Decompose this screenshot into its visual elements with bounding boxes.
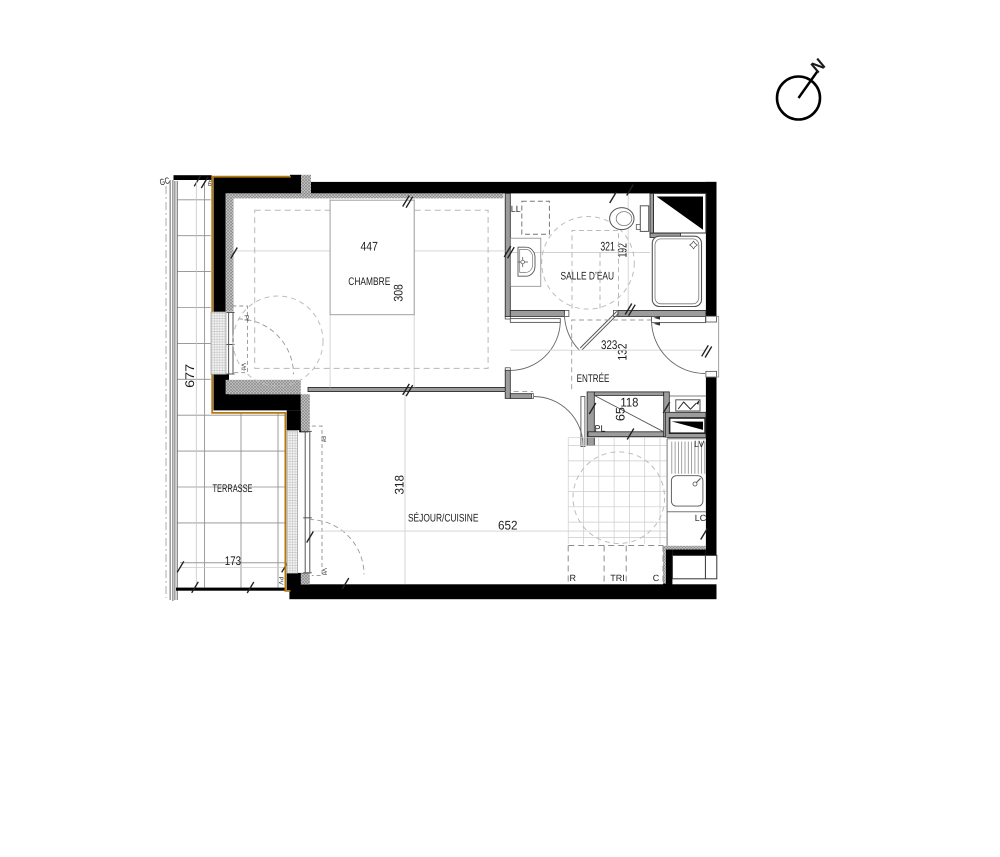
svg-text:PV: PV (277, 577, 284, 586)
svg-text:318: 318 (392, 475, 406, 495)
svg-text:Pf: Pf (320, 436, 327, 442)
svg-text:447: 447 (361, 239, 378, 253)
svg-text:LV: LV (694, 439, 704, 449)
svg-text:65: 65 (613, 407, 627, 421)
svg-text:C: C (653, 573, 660, 583)
svg-text:308: 308 (391, 284, 405, 301)
svg-text:LC: LC (695, 513, 707, 523)
svg-text:173: 173 (225, 554, 241, 568)
svg-text:132: 132 (615, 343, 629, 360)
svg-text:652: 652 (498, 518, 518, 532)
svg-text:192: 192 (616, 243, 630, 258)
svg-text:PL: PL (595, 424, 606, 434)
svg-text:CHAMBRE: CHAMBRE (348, 276, 390, 288)
svg-text:SALLE D’EAU: SALLE D’EAU (561, 271, 615, 283)
svg-text:R: R (570, 573, 577, 583)
svg-text:677: 677 (183, 364, 197, 388)
svg-text:SÉJOUR/CUISINE: SÉJOUR/CUISINE (408, 511, 479, 524)
svg-text:TRI: TRI (610, 573, 625, 583)
svg-text:Pf: Pf (243, 315, 250, 321)
svg-text:ENTRÉE: ENTRÉE (577, 372, 610, 385)
svg-text:TERRASSE: TERRASSE (213, 483, 253, 495)
svg-text:Vtl: Vtl (321, 568, 328, 575)
svg-text:321: 321 (600, 240, 615, 254)
svg-text:LL: LL (511, 204, 521, 214)
